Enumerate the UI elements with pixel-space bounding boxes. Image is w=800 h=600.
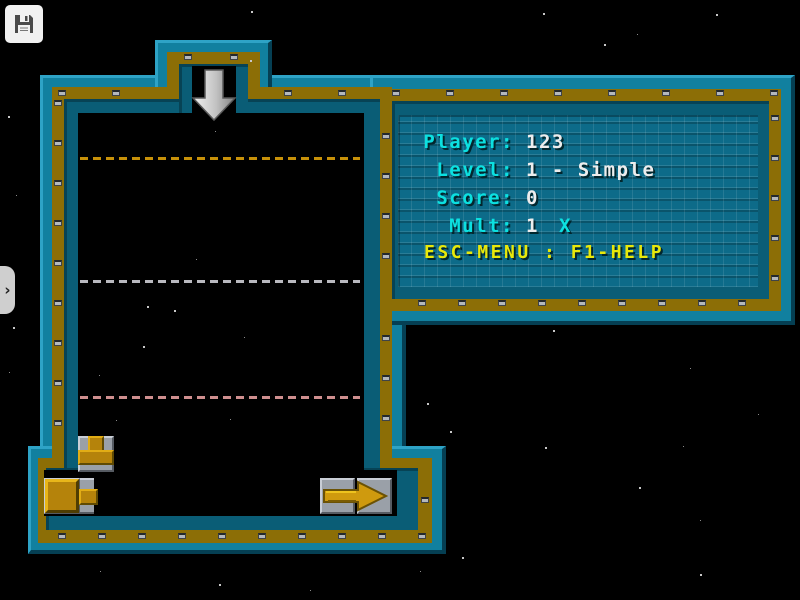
rivet (716, 90, 724, 96)
mult-value: 1 (526, 217, 539, 236)
star (639, 487, 641, 489)
save-icon (13, 13, 35, 35)
star (700, 520, 701, 521)
rivet (771, 115, 779, 121)
star (251, 11, 253, 13)
exit-arrow-icon (322, 478, 390, 514)
rivet (771, 235, 779, 241)
star (427, 403, 429, 405)
rivet (771, 155, 779, 161)
level-label: Level: (398, 161, 514, 180)
guide-line (80, 280, 360, 283)
rivet (378, 533, 386, 539)
rivet (658, 300, 666, 306)
rivet (382, 335, 390, 341)
star (683, 446, 684, 447)
rivet (382, 415, 390, 421)
hud-help-text: ESC-MENU : F1-HELP (424, 244, 758, 262)
rivet (392, 90, 400, 96)
rivet (382, 253, 390, 259)
start-block[interactable] (45, 479, 79, 513)
star (420, 571, 421, 572)
rivet (771, 195, 779, 201)
rivet (498, 300, 506, 306)
rivet (54, 220, 62, 226)
rivet (54, 100, 62, 106)
rivet (54, 300, 62, 306)
rivet (178, 533, 186, 539)
rivet (500, 90, 508, 96)
rivet (184, 54, 192, 60)
rivet (58, 90, 66, 96)
guide-line (80, 396, 360, 399)
rivet (771, 275, 779, 281)
rivet (258, 533, 266, 539)
star (545, 447, 547, 449)
star (553, 330, 555, 332)
rivet (54, 420, 62, 426)
rivet (382, 133, 390, 139)
rivet (284, 90, 292, 96)
rivet (54, 340, 62, 346)
rivet (54, 180, 62, 186)
pipe-t-bar (78, 450, 114, 465)
hud-panel: Player: 123 Level: 1 - Simple Score: 0 M… (398, 115, 758, 287)
score-label: Score: (398, 189, 514, 208)
rivet (382, 375, 390, 381)
rivet (418, 300, 426, 306)
hud-row-score: Score: 0 (398, 184, 758, 212)
rivet (338, 90, 346, 96)
game-screen: Player: 123 Level: 1 - Simple Score: 0 M… (0, 0, 800, 600)
star (716, 14, 718, 16)
rivet (418, 533, 426, 539)
rivet (618, 300, 626, 306)
rivet (538, 300, 546, 306)
rivet (230, 54, 238, 60)
level-value: 1 - Simple (526, 161, 655, 180)
star (196, 259, 197, 260)
chevron-right-icon: › (4, 281, 10, 299)
star (690, 368, 691, 369)
player-value: 123 (526, 133, 565, 152)
score-value: 0 (526, 189, 539, 208)
star (219, 584, 221, 586)
star (244, 337, 245, 338)
star (174, 310, 176, 312)
star (215, 131, 216, 132)
rivet (421, 497, 429, 503)
rivet (662, 90, 670, 96)
playfield[interactable] (78, 113, 364, 516)
star (147, 306, 149, 308)
rivet (770, 90, 778, 96)
rivet (54, 140, 62, 146)
guide-line (80, 157, 360, 160)
rivet (112, 90, 120, 96)
star (230, 419, 231, 420)
hud-row-player: Player: 123 (398, 128, 758, 156)
mult-suffix: X (559, 217, 572, 236)
star (758, 414, 759, 415)
star (462, 557, 464, 559)
star (116, 420, 117, 421)
star (310, 590, 311, 591)
drop-arrow-icon (193, 68, 237, 124)
star (700, 574, 702, 576)
star (13, 327, 15, 329)
rivet (54, 380, 62, 386)
rivet (446, 90, 454, 96)
rivet (738, 300, 746, 306)
mult-label: Mult: (398, 217, 514, 236)
save-button[interactable] (5, 5, 43, 43)
rivet (382, 213, 390, 219)
rivet (698, 300, 706, 306)
star (543, 13, 545, 15)
star (143, 346, 145, 348)
star (637, 34, 638, 35)
rivet (298, 533, 306, 539)
star (100, 571, 101, 572)
sidebar-toggle[interactable]: › (0, 266, 15, 314)
star (8, 116, 10, 118)
start-block-stub (79, 489, 98, 505)
rivet (98, 533, 106, 539)
star (450, 431, 452, 433)
hud-row-mult: Mult: 1 X (398, 212, 758, 240)
rivet (218, 533, 226, 539)
rivet (138, 533, 146, 539)
star (16, 195, 17, 196)
hud-row-level: Level: 1 - Simple (398, 156, 758, 184)
star (9, 372, 10, 373)
rivet (554, 90, 562, 96)
rivet (54, 260, 62, 266)
rivet (58, 533, 66, 539)
star (250, 60, 252, 62)
star (604, 44, 606, 46)
rivet (338, 533, 346, 539)
rivet (382, 173, 390, 179)
rivet (578, 300, 586, 306)
rivet (608, 90, 616, 96)
star (99, 375, 100, 376)
player-label: Player: (398, 133, 514, 152)
rivet (458, 300, 466, 306)
